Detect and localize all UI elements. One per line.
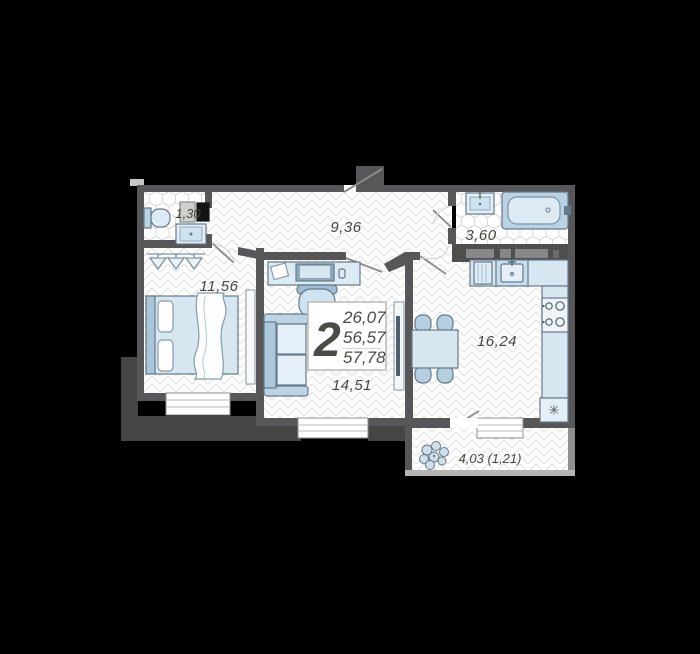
living-room-window bbox=[298, 418, 368, 438]
toilet-icon bbox=[144, 208, 170, 228]
room-label-bedroom: 11,56 bbox=[200, 278, 239, 295]
balcony-wall-right bbox=[568, 428, 575, 472]
vent-shaft bbox=[452, 244, 568, 262]
bedroom-window bbox=[166, 393, 230, 415]
dining-table bbox=[412, 330, 458, 368]
unit-summary: 2 26,07 56,57 57,78 bbox=[308, 302, 386, 370]
fridge-symbol: ✳ bbox=[548, 402, 560, 418]
tv-icon bbox=[396, 316, 400, 376]
room-label-kitchen: 16,24 bbox=[477, 333, 517, 350]
blanket-icon bbox=[194, 293, 226, 379]
room-label-balcony: 4,03 (1,21) bbox=[459, 451, 522, 466]
sofa bbox=[264, 314, 308, 396]
bedroom-wardrobe bbox=[246, 290, 255, 384]
room-label-living: 14,51 bbox=[332, 377, 372, 394]
area-value-2: 56,57 bbox=[343, 328, 386, 347]
room-label-hallway: 9,36 bbox=[330, 219, 361, 236]
fridge-icon: ✳ bbox=[540, 398, 568, 422]
area-value-1: 26,07 bbox=[342, 308, 386, 327]
area-value-3: 57,78 bbox=[343, 348, 386, 367]
bathroom-sink-icon bbox=[466, 191, 494, 214]
floor-plan-svg: ✳ 2 26 bbox=[0, 0, 700, 654]
kitchen-window bbox=[477, 418, 523, 438]
room-label-bathroom: 3,60 bbox=[465, 227, 496, 244]
pillow-icon bbox=[158, 301, 173, 332]
desk bbox=[268, 262, 360, 285]
bathtub-icon bbox=[502, 192, 571, 229]
sink-icon bbox=[176, 224, 206, 244]
dish-rack-icon bbox=[474, 262, 492, 284]
headboard bbox=[146, 296, 155, 374]
floorplan-canvas: ✳ 2 26 bbox=[0, 0, 700, 654]
balcony-wall-bottom bbox=[405, 470, 575, 476]
mouse-icon bbox=[339, 269, 345, 278]
stove-icon bbox=[542, 298, 568, 332]
room-label-wc: 1,30 bbox=[175, 206, 201, 221]
balcony-door-opening bbox=[450, 418, 478, 428]
kitchen-sink-icon bbox=[496, 258, 528, 286]
pillow-icon bbox=[158, 340, 173, 371]
bed bbox=[146, 293, 238, 379]
tv-console bbox=[394, 302, 404, 390]
rooms-count: 2 bbox=[313, 314, 341, 367]
bathtub-faucet bbox=[564, 206, 571, 215]
wall-stub-top-left bbox=[130, 179, 144, 186]
